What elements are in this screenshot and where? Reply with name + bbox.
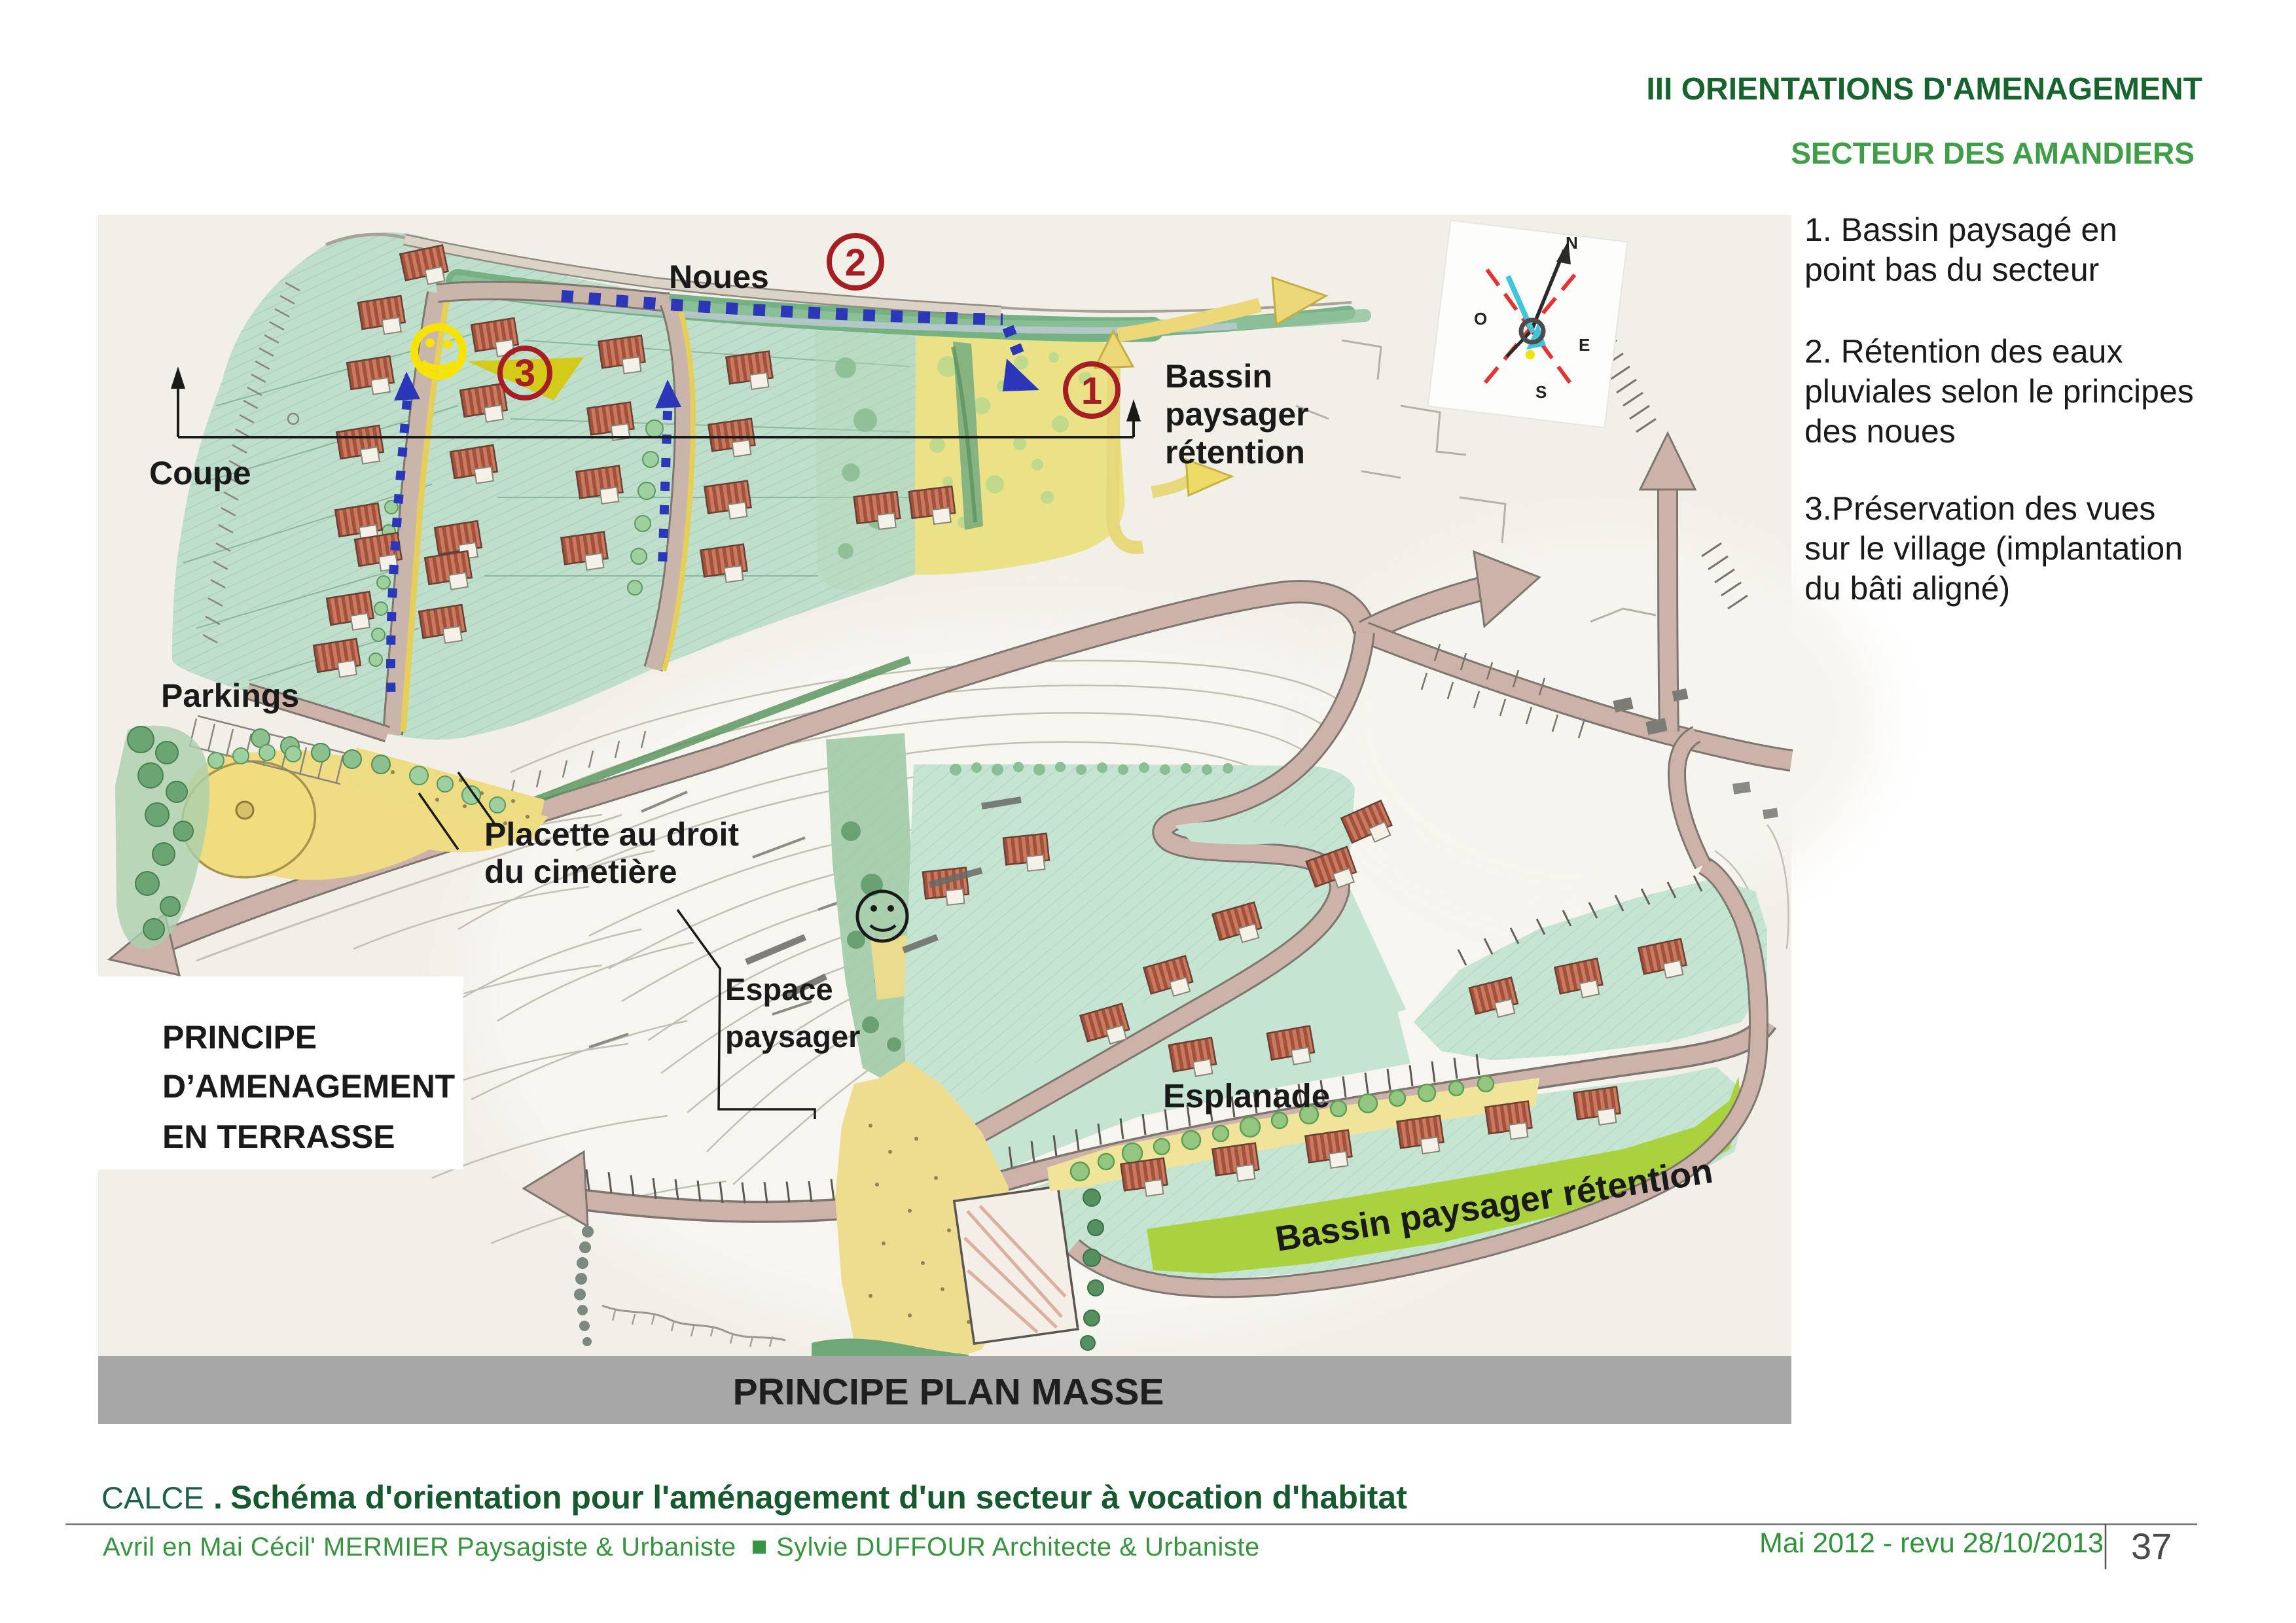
svg-text:Mai 2012 - revu 28/10/2013: Mai 2012 - revu 28/10/2013 xyxy=(1759,1527,2104,1559)
svg-text:Avril en Mai Cécil' MERMIER P: Avril en Mai Cécil' MERMIER Paysagiste &… xyxy=(103,1533,736,1561)
svg-text:Noues: Noues xyxy=(669,259,769,295)
svg-text:Sylvie DUFFOUR Architecte & Ur: Sylvie DUFFOUR Architecte & Urbaniste xyxy=(776,1533,1260,1561)
svg-text:3.Préservation des vues: 3.Préservation des vues xyxy=(1804,490,2155,527)
svg-text:pluviales selon le principes: pluviales selon le principes xyxy=(1804,373,2194,410)
svg-text:du bâti aligné): du bâti aligné) xyxy=(1804,570,2010,607)
svg-text:3: 3 xyxy=(514,352,535,395)
svg-text:O: O xyxy=(1474,309,1487,329)
svg-text:Placette au droit: Placette au droit xyxy=(484,816,739,853)
svg-text:CALCE: CALCE xyxy=(101,1480,204,1515)
svg-text:Schéma d'orientation pour l'am: Schéma d'orientation pour l'aménagement … xyxy=(230,1479,1407,1516)
svg-text:2: 2 xyxy=(845,241,866,284)
svg-text:1: 1 xyxy=(1081,370,1102,412)
svg-text:Bassin: Bassin xyxy=(1165,358,1272,395)
svg-text:1. Bassin paysagé en: 1. Bassin paysagé en xyxy=(1804,211,2117,248)
svg-text:paysager: paysager xyxy=(725,1019,860,1054)
svg-text:PRINCIPE PLAN MASSE: PRINCIPE PLAN MASSE xyxy=(733,1371,1164,1413)
svg-text:D’AMENAGEMENT: D’AMENAGEMENT xyxy=(162,1068,455,1105)
svg-text:III ORIENTATIONS D'AMENAGEMENT: III ORIENTATIONS D'AMENAGEMENT xyxy=(1646,72,2202,107)
svg-text:Espace: Espace xyxy=(725,972,833,1007)
svg-text:EN TERRASSE: EN TERRASSE xyxy=(162,1118,395,1155)
svg-text:PRINCIPE: PRINCIPE xyxy=(162,1019,317,1056)
svg-text:Esplanade: Esplanade xyxy=(1163,1077,1330,1115)
svg-text:E: E xyxy=(1579,335,1590,355)
svg-text:N: N xyxy=(1566,233,1578,253)
svg-text:Coupe: Coupe xyxy=(149,455,251,491)
svg-text:des noues: des noues xyxy=(1804,413,1956,450)
svg-text:du cimetière: du cimetière xyxy=(484,853,677,890)
svg-text:37: 37 xyxy=(2131,1525,2172,1567)
svg-text:Parkings: Parkings xyxy=(161,677,299,714)
svg-text:2. Rétention des eaux: 2. Rétention des eaux xyxy=(1804,333,2123,370)
svg-text:point bas du secteur: point bas du secteur xyxy=(1804,251,2099,288)
svg-text:S: S xyxy=(1535,382,1547,402)
svg-text:SECTEUR DES AMANDIERS: SECTEUR DES AMANDIERS xyxy=(1791,136,2195,170)
svg-text:paysager: paysager xyxy=(1165,396,1309,433)
svg-text:sur le village (implantation: sur le village (implantation xyxy=(1804,530,2183,567)
svg-text:rétention: rétention xyxy=(1165,434,1305,471)
svg-text:.: . xyxy=(213,1479,223,1516)
